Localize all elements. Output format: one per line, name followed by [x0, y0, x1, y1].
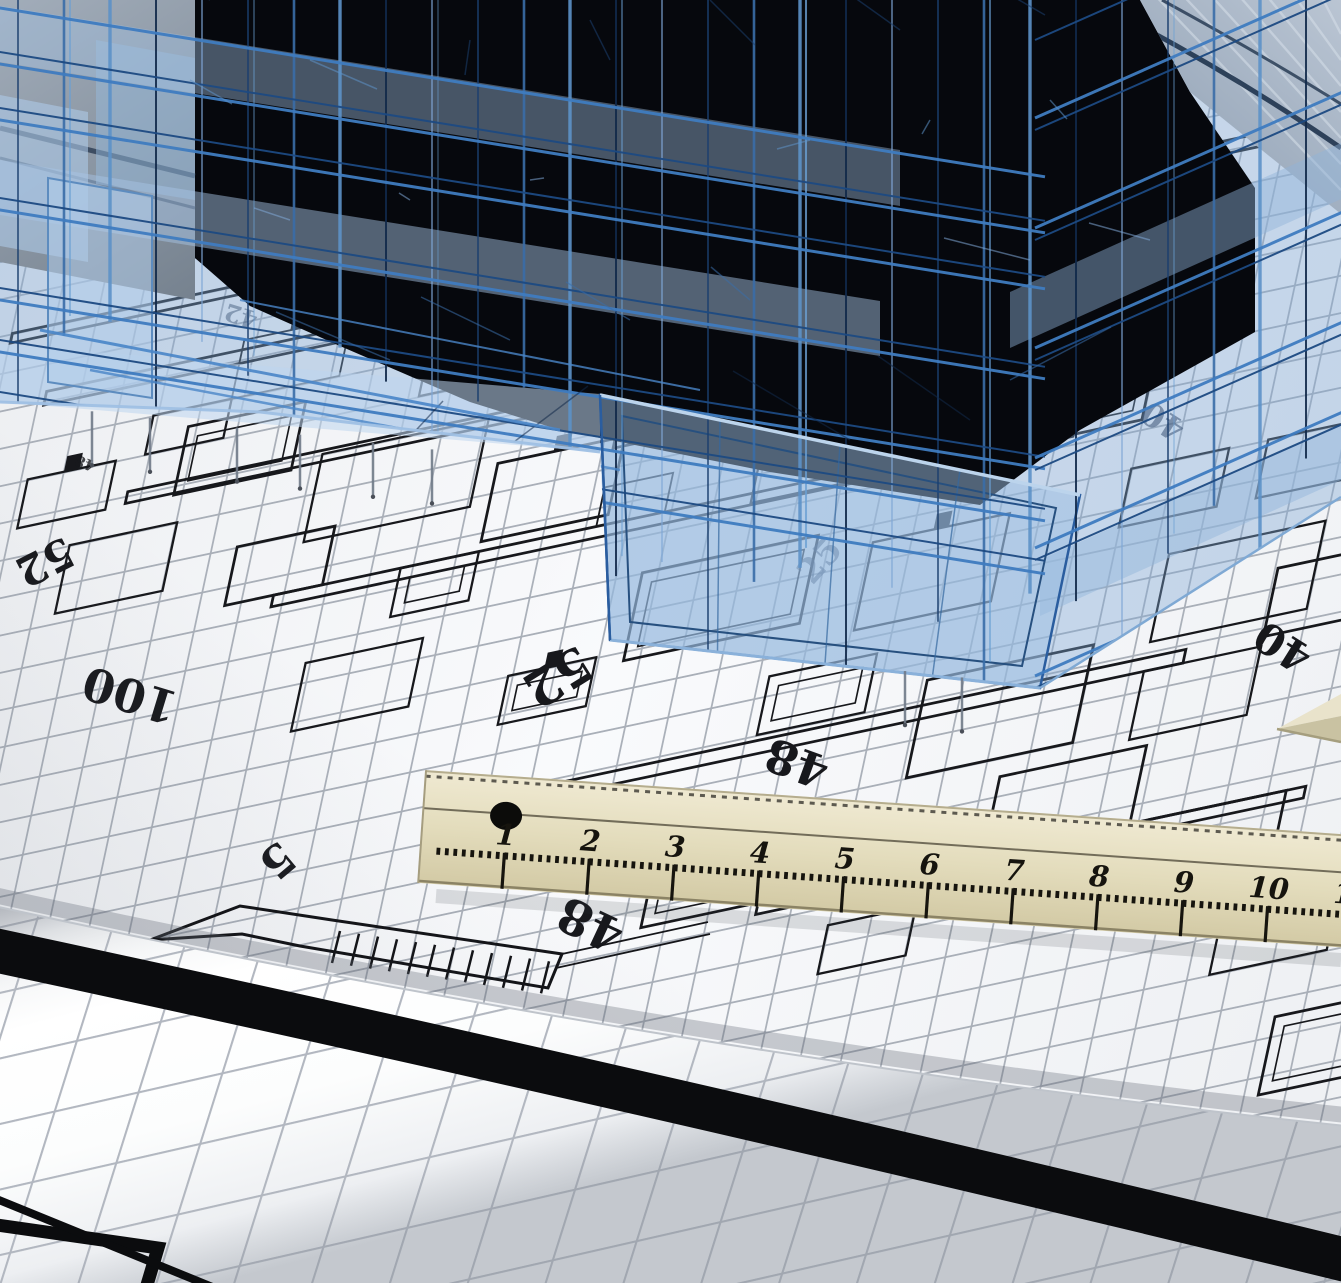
- ruler-mark: 7: [1003, 853, 1026, 888]
- ruler-mark: 6: [918, 847, 941, 882]
- scene: 521005248405484840252542 1234567891011: [0, 0, 1341, 1283]
- ruler-mark: 10: [1248, 870, 1291, 907]
- ruler-mark: 8: [1087, 859, 1111, 894]
- ruler-mark: 2: [578, 823, 602, 858]
- ruler-mark: 9: [1173, 865, 1196, 900]
- ruler-mark: 3: [664, 829, 687, 864]
- ruler-mark: 1: [494, 817, 517, 852]
- ruler-mark: 11: [1332, 876, 1341, 913]
- ruler-mark: 5: [834, 841, 857, 876]
- ruler-mark: 4: [749, 835, 772, 870]
- screenshot-canvas: 521005248405484840252542 1234567891011: [0, 0, 1341, 1283]
